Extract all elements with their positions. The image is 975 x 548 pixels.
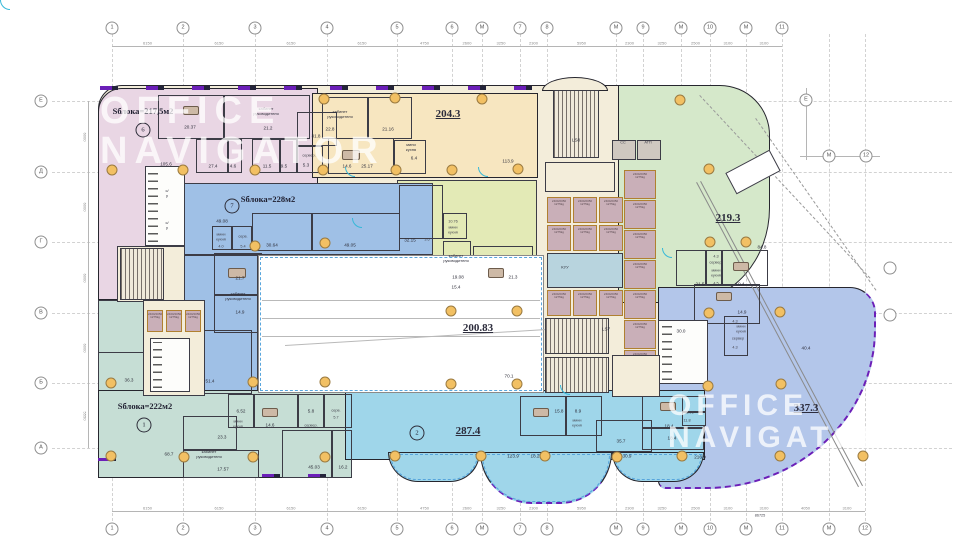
grid-bubble: М — [675, 22, 688, 35]
plan-label: 84.8 — [758, 244, 767, 249]
plan-label: 51.4 — [206, 378, 215, 383]
grid-bubble: М — [476, 523, 489, 536]
column-marker — [540, 451, 551, 462]
column-marker — [250, 241, 261, 252]
floor-plan: 2400/2050 1275kg 2400/2050 1275kg 2400/2… — [0, 0, 975, 548]
core-lobby — [545, 162, 615, 192]
dim-text: 6150 — [143, 41, 152, 46]
grid-bubble: 1 — [106, 22, 119, 35]
wc-stalls — [153, 342, 162, 388]
plan-label: 5.8 — [308, 408, 314, 413]
dim-text: 6150 — [358, 41, 367, 46]
plan-label: 31.8 — [312, 133, 321, 138]
dim-text: 3100 — [760, 506, 769, 511]
plan-label: 86725 — [755, 514, 766, 519]
lift-cell: 2400/2050 1275kg — [547, 197, 571, 223]
plan-label: 219.3 — [716, 212, 741, 224]
atrium-line — [262, 318, 540, 319]
plan-label: 4.0 — [218, 245, 223, 250]
dim-text: 4750 — [420, 506, 429, 511]
facade-accent-left — [98, 458, 144, 461]
plan-label: 25.17 — [361, 163, 373, 168]
plan-label: 70.1 — [505, 373, 514, 378]
building-top-bulge — [542, 77, 608, 91]
plan-label: 1 — [137, 418, 152, 433]
plan-label: 36.3 — [125, 377, 134, 382]
dim-text: 2300 — [529, 41, 538, 46]
grid-bubble: 6 — [446, 22, 459, 35]
grid-bubble: М — [476, 22, 489, 35]
grid-bubble: 2 — [177, 22, 190, 35]
dim-text: 2600 — [463, 506, 472, 511]
facade-accent-top — [100, 86, 538, 90]
plan-label: 200.83 — [463, 322, 493, 334]
column-marker — [318, 165, 329, 176]
dim-text: 6150 — [215, 506, 224, 511]
conference-table — [733, 262, 749, 271]
grid-bubble: 5 — [391, 523, 404, 536]
column-marker — [107, 165, 118, 176]
grid-bubble: 11 — [776, 22, 789, 35]
plan-label: 15.4 — [452, 284, 461, 289]
lift-cell: 2400/2050 1275kg — [573, 225, 597, 251]
dim-text: 3100 — [760, 41, 769, 46]
facade-accent-teal — [262, 474, 352, 477]
dim-text: 6150 — [143, 506, 152, 511]
column-marker — [741, 237, 752, 248]
plan-label: 22.8 — [326, 126, 335, 131]
plan-label: 4.3 — [713, 255, 718, 260]
grid-bubble: 4 — [321, 22, 334, 35]
grid-bubble: 10 — [704, 22, 717, 35]
stair-ls7 — [545, 318, 609, 354]
grid-bubble: А — [35, 442, 48, 455]
plan-label: кабинет руководителя — [443, 254, 468, 264]
dim-text: 5550 — [83, 411, 88, 420]
grid-bubble: 4 — [321, 523, 334, 536]
dim-text: 2600 — [463, 41, 472, 46]
lift-cell: 2400/2050 1275kg — [573, 197, 597, 223]
lift-cell: 2400/2050 1275kg — [599, 197, 623, 223]
plan-label: 8.9 — [575, 408, 581, 413]
conference-table — [488, 268, 504, 278]
plan-label: сервер. — [709, 261, 722, 266]
dim-text: 2500 — [691, 41, 700, 46]
column-marker — [447, 165, 458, 176]
column-marker — [320, 452, 331, 463]
grid-bubble: Е — [800, 94, 813, 107]
plan-label: 18.4 — [665, 423, 674, 428]
column-marker — [390, 451, 401, 462]
column-marker — [704, 308, 715, 319]
dim-text: 6150 — [287, 506, 296, 511]
conference-table — [660, 402, 676, 411]
plan-label: 123.9 — [507, 453, 519, 458]
plan-label: 30.64 — [266, 242, 278, 247]
grid-bubble: 11 — [776, 523, 789, 536]
plan-label: 3.6 — [424, 238, 429, 243]
plan-label: мини кухня — [711, 268, 721, 277]
room — [198, 330, 252, 394]
grid-bubble: 3 — [249, 22, 262, 35]
plan-label: сервер — [732, 337, 744, 342]
plan-label: 16.2 — [339, 464, 348, 469]
plan-label: 7 — [225, 199, 240, 214]
column-marker — [677, 451, 688, 462]
grid-bubble: 7 — [514, 523, 527, 536]
door-arc — [0, 0, 10, 10]
lift-cell: 2400/2050 1275kg — [624, 320, 656, 349]
grid-bubble: 3 — [249, 523, 262, 536]
lift-cell: 2400/2050 1275kg — [573, 290, 597, 316]
conference-table — [262, 408, 278, 417]
lift-cell: 2400/2050 1275kg — [624, 170, 656, 199]
room — [682, 396, 706, 412]
lift-cell: 2400/2050 1275kg — [599, 290, 623, 316]
dim-text: 3100 — [724, 506, 733, 511]
column-marker — [775, 307, 786, 318]
plan-label: 14.6 — [266, 422, 275, 427]
column-marker — [476, 451, 487, 462]
plan-label: 32.15 — [404, 237, 416, 242]
column-marker — [178, 165, 189, 176]
plan-label: Sблока=217,5м2 — [113, 106, 174, 116]
plan-label: 287.4 — [456, 425, 481, 437]
plan-label: 5.4 — [240, 245, 245, 250]
grid-bubble: Б — [35, 377, 48, 390]
plan-label: 21.7 — [236, 275, 245, 280]
column-marker — [775, 451, 786, 462]
dim-text: 2300 — [529, 506, 538, 511]
dim-text: 3250 — [497, 506, 506, 511]
room — [183, 416, 237, 450]
dim-text: 3100 — [843, 506, 852, 511]
plan-label: 27.4 — [209, 163, 218, 168]
plan-label: с/у — [165, 221, 168, 231]
plan-label: 45.03 — [308, 464, 320, 469]
dim-text: 3100 — [724, 41, 733, 46]
dim-text: 5950 — [577, 41, 586, 46]
column-marker — [612, 452, 623, 463]
grid-bubble: М — [610, 523, 623, 536]
plan-label: 40.4 — [802, 345, 811, 350]
dim-text: 6150 — [215, 41, 224, 46]
plan-label: 35.7 — [617, 438, 626, 443]
dim-text: 6150 — [287, 41, 296, 46]
lift-cell: 2400/2050 1275kg — [599, 225, 623, 251]
plan-label: 4.5 — [713, 282, 718, 287]
dim-line — [88, 101, 89, 448]
lift-cell: 2400/2050 1275kg — [185, 310, 201, 332]
atrium-line — [262, 336, 540, 337]
plan-label: 4.3 — [732, 346, 737, 351]
plan-label: 6.4 — [411, 155, 417, 160]
plan-label: 105.6 — [160, 161, 172, 166]
grid-bubble: 6 — [446, 523, 459, 536]
conference-table — [533, 408, 549, 417]
plan-label: 4.6 — [230, 163, 236, 168]
plan-label: 14.9 — [236, 309, 245, 314]
stair-ls8 — [553, 90, 599, 158]
plan-label: мини кухня — [736, 324, 746, 333]
plan-label: 21.5 — [696, 281, 705, 286]
room — [158, 95, 224, 139]
plan-label: мини кухня — [406, 143, 416, 153]
conference-table — [183, 106, 199, 115]
room-kuu — [547, 253, 623, 288]
column-marker — [320, 377, 331, 388]
conference-table — [342, 150, 360, 160]
column-marker — [248, 377, 259, 388]
grid-bubble: 10 — [704, 523, 717, 536]
plan-label: мини кухня — [233, 419, 243, 428]
lift-cell: 2400/2050 1275kg — [166, 310, 182, 332]
plan-label: CC — [620, 141, 625, 146]
plan-label: сервер. — [302, 154, 315, 159]
plan-label: кабинет руководителя — [327, 110, 352, 120]
dim-text: 5950 — [577, 506, 586, 511]
plan-label: 19.4 — [736, 281, 745, 286]
room — [252, 213, 312, 251]
plan-label: 68.7 — [165, 451, 174, 456]
plan-label: 30.9 — [623, 453, 632, 458]
plan-label: серв. — [238, 235, 247, 240]
grid-bubble: 12 — [859, 523, 872, 536]
dim-text: 6000 — [83, 273, 88, 282]
column-marker — [446, 306, 457, 317]
plan-label: АТП — [644, 141, 651, 146]
dim-text: 3250 — [658, 41, 667, 46]
grid-bubble: Е — [35, 95, 48, 108]
room — [399, 185, 443, 239]
grid-bubble: 8 — [541, 523, 554, 536]
plan-label: 13.06 — [684, 411, 694, 416]
plan-label: 17.57 — [217, 466, 229, 471]
plan-label: 18.4 — [668, 435, 677, 440]
plan-label: 20.37 — [184, 124, 196, 129]
plan-label: 337.3 — [794, 402, 819, 414]
grid-bubble: 12 — [860, 150, 873, 163]
plan-label: 6.52 — [237, 408, 246, 413]
column-marker — [319, 94, 330, 105]
grid-bubble: М — [823, 150, 836, 163]
grid-bubble — [884, 309, 897, 322]
plan-label: 14.6 — [343, 163, 352, 168]
grid-bubble: М — [740, 523, 753, 536]
plan-label: 21.2 — [264, 125, 273, 130]
plan-label: 10.76 — [448, 220, 458, 225]
plan-label: LS8 — [572, 137, 580, 142]
plan-label: 14.9 — [738, 309, 747, 314]
bay-left — [388, 452, 480, 482]
dim-text: 6000 — [83, 344, 88, 353]
dim-text: 3250 — [497, 41, 506, 46]
dim-text: 2500 — [691, 506, 700, 511]
lift-cell: 2400/2050 1275kg — [624, 290, 656, 319]
dim-text: 2300 — [625, 506, 634, 511]
column-marker — [704, 164, 715, 175]
grid-bubble: 8 — [541, 22, 554, 35]
dim-line — [112, 511, 865, 512]
plan-label: мини кухня — [572, 418, 582, 427]
plan-label: 216.9 — [694, 454, 706, 459]
core-bottom-lobby — [612, 355, 660, 397]
plan-label: 21.3 — [509, 274, 518, 279]
plan-label: 11.8 — [683, 419, 690, 424]
grid-bubble: М — [675, 523, 688, 536]
wc-stalls — [148, 170, 158, 242]
grid-bubble: М — [610, 22, 623, 35]
plan-label: 49.05 — [344, 242, 356, 247]
lift-cell: 2400/2050 1275kg — [624, 230, 656, 259]
column-marker — [250, 165, 261, 176]
plan-label: кабинет руководителя — [253, 107, 278, 117]
grid-bubble: М — [823, 523, 836, 536]
column-marker — [776, 379, 787, 390]
plan-label: мини кухня — [448, 225, 458, 234]
stair-lower — [545, 357, 609, 393]
grid-bubble: Г — [35, 236, 48, 249]
dim-text: 6150 — [358, 506, 367, 511]
wc-stalls — [662, 324, 672, 380]
plan-label: 9.5 — [281, 163, 287, 168]
plan-label: с/у — [165, 189, 168, 199]
plan-label: 19.08 — [452, 274, 464, 279]
plan-label: серв. — [331, 409, 340, 414]
plan-label: Sблока=222м2 — [118, 401, 172, 411]
plan-label: 15.8 — [555, 408, 564, 413]
lift-cell: 2400/2050 1275kg — [624, 260, 656, 289]
column-marker — [446, 379, 457, 390]
column-marker — [513, 164, 524, 175]
lift-cell: 2400/2050 1275kg — [547, 290, 571, 316]
column-marker — [106, 451, 117, 462]
grid-bubble: 9 — [637, 523, 650, 536]
plan-label: мини кухня — [216, 232, 226, 241]
plan-label: 5.3 — [303, 162, 309, 167]
column-marker — [512, 379, 523, 390]
plan-label: 18.2 — [531, 453, 540, 458]
column-marker — [858, 451, 869, 462]
grid-line-vertical — [829, 34, 830, 526]
column-marker — [106, 378, 117, 389]
column-marker — [391, 165, 402, 176]
grid-bubble: Д — [35, 166, 48, 179]
column-marker — [512, 306, 523, 317]
plan-label: кабинет руководителя — [225, 292, 250, 302]
column-marker — [390, 93, 401, 104]
room — [332, 430, 352, 478]
grid-bubble: 7 — [514, 22, 527, 35]
plan-label: 11.5 — [263, 163, 272, 168]
dim-line — [112, 46, 782, 47]
atrium-line — [262, 300, 540, 301]
plan-label: 23.3 — [218, 434, 227, 439]
room — [368, 97, 412, 139]
grid-bubble: 1 — [106, 523, 119, 536]
plan-label: 6 — [136, 123, 151, 138]
column-marker — [705, 237, 716, 248]
lift-cell: 2400/2050 1275kg — [624, 200, 656, 229]
plan-label: 2 — [410, 426, 425, 441]
column-marker — [179, 452, 190, 463]
plan-label: 21.16 — [382, 126, 394, 131]
grid-bubble: 5 — [391, 22, 404, 35]
plan-label: LS7 — [602, 326, 610, 331]
plan-label: 49.08 — [216, 218, 228, 223]
lift-cell: 2400/2050 1275kg — [147, 310, 163, 332]
column-marker — [703, 381, 714, 392]
plan-label: 113.9 — [502, 158, 513, 163]
lift-cell: 2400/2050 1275kg — [547, 225, 571, 251]
plan-label: 204.3 — [436, 108, 461, 120]
column-marker — [248, 452, 259, 463]
grid-bubble: В — [35, 307, 48, 320]
grid-bubble — [884, 262, 897, 275]
plan-label: 30.0 — [677, 328, 686, 333]
dim-text: 3250 — [658, 506, 667, 511]
west-stair — [120, 248, 164, 300]
grid-bubble: 9 — [637, 22, 650, 35]
plan-label: Sблока=228м2 — [241, 194, 295, 204]
plan-label: сервер. — [304, 424, 317, 429]
axis-diagonal — [755, 118, 876, 291]
room — [328, 138, 394, 174]
grid-bubble: 2 — [177, 523, 190, 536]
dim-text: 4050 — [801, 506, 810, 511]
column-marker — [675, 95, 686, 106]
dim-text: 2300 — [625, 41, 634, 46]
dim-text: 6000 — [83, 132, 88, 141]
dim-text: 4750 — [420, 41, 429, 46]
plan-label: КУУ — [561, 266, 568, 271]
plan-label: кабинет руководителя — [196, 450, 221, 460]
conference-table — [716, 292, 732, 301]
dim-text: 6000 — [83, 203, 88, 212]
grid-bubble: М — [740, 22, 753, 35]
column-marker — [477, 94, 488, 105]
plan-label: 5.7 — [333, 416, 338, 421]
column-marker — [320, 238, 331, 249]
